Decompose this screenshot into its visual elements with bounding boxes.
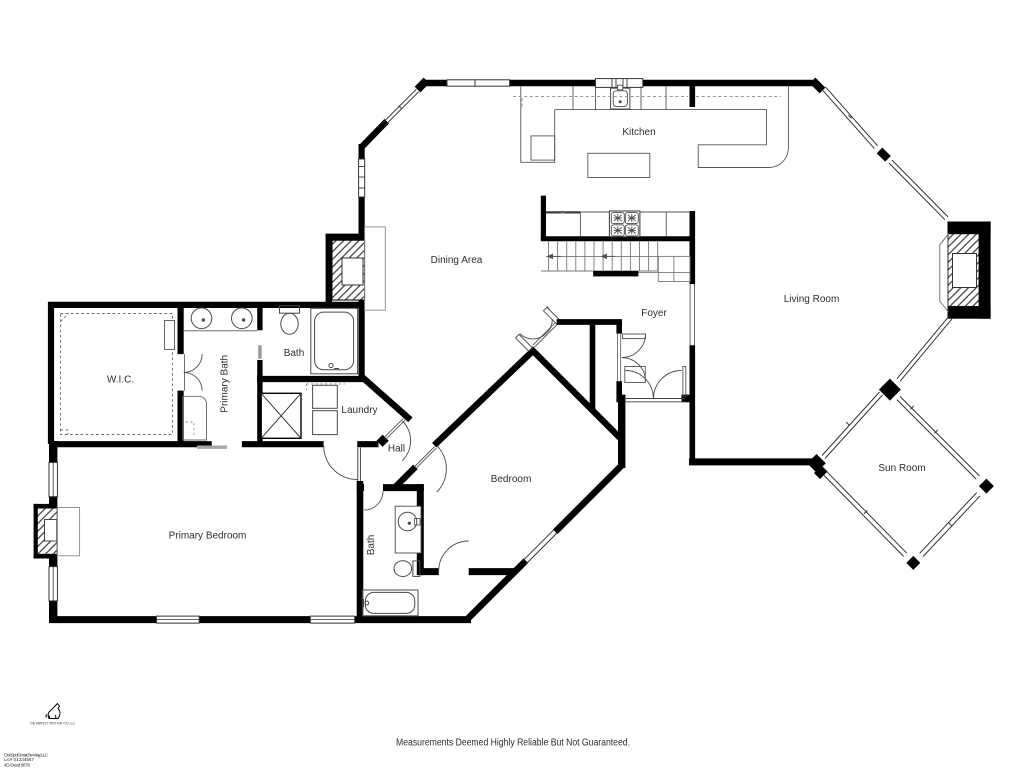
svg-text:Measurements Deemed Highly Rel: Measurements Deemed Highly Reliable But … bbox=[396, 738, 630, 749]
svg-text:Laundry: Laundry bbox=[341, 405, 377, 416]
svg-text:Hall: Hall bbox=[388, 444, 405, 455]
svg-text:Dining Area: Dining Area bbox=[431, 255, 483, 266]
svg-text:Bath: Bath bbox=[366, 535, 377, 556]
svg-text:Primary Bath: Primary Bath bbox=[220, 355, 231, 413]
svg-text:Bath: Bath bbox=[284, 348, 305, 359]
svg-text:Foyer: Foyer bbox=[641, 308, 667, 319]
svg-text:Living Room: Living Room bbox=[784, 294, 840, 305]
svg-text:Primary Bedroom: Primary Bedroom bbox=[169, 531, 247, 542]
svg-text:4D-Deed 9876: 4D-Deed 9876 bbox=[4, 763, 30, 768]
svg-text:W.I.C.: W.I.C. bbox=[107, 375, 134, 386]
svg-text:THE PERFECT SPOT FOR YOU, LLC: THE PERFECT SPOT FOR YOU, LLC bbox=[30, 721, 75, 726]
svg-text:Sun Room: Sun Room bbox=[878, 463, 925, 474]
svg-text:Lic# 01234567: Lic# 01234567 bbox=[4, 757, 34, 762]
svg-text:Kitchen: Kitchen bbox=[622, 127, 655, 138]
svg-text:Bedroom: Bedroom bbox=[491, 474, 532, 485]
